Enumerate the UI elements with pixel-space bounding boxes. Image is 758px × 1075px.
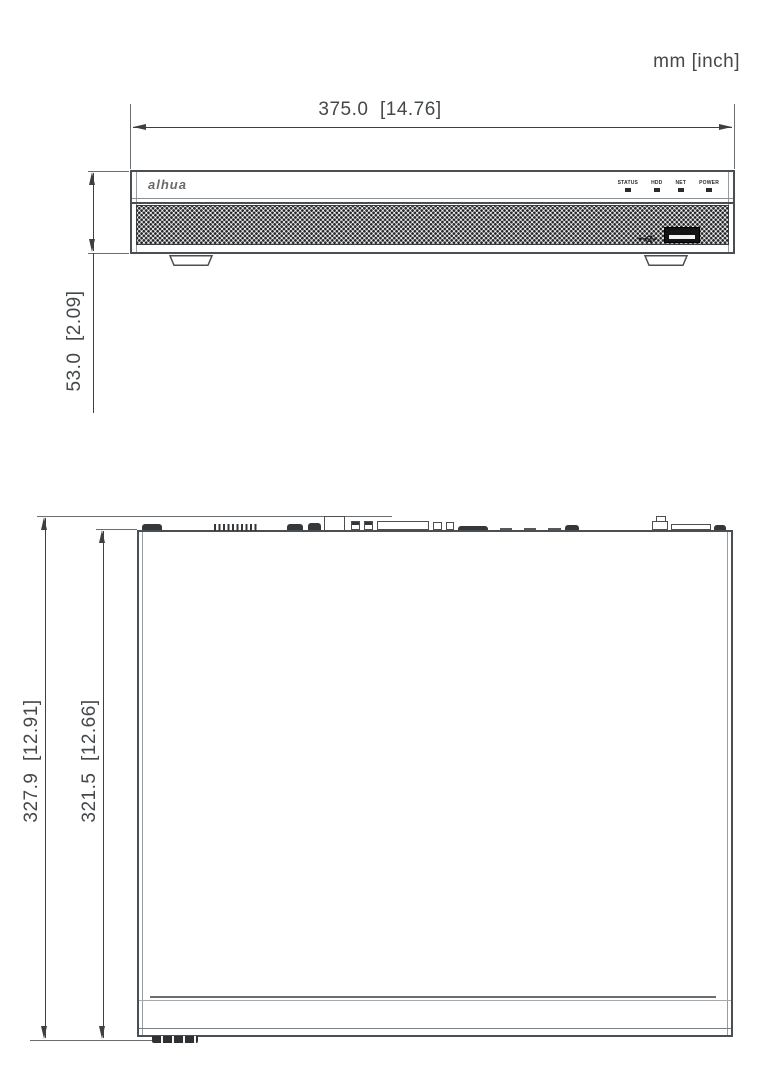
led-indicator-row: STATUS HDD NET POWER	[618, 180, 719, 192]
front-panel-line	[139, 1000, 731, 1001]
led-hdd-label: HDD	[651, 180, 662, 186]
arrowhead-right-icon	[719, 124, 732, 130]
body-depth-dimension-label: 321.5 [12.66]	[79, 681, 101, 841]
rear-edge-mark	[524, 528, 536, 530]
rear-connector-bump	[565, 525, 579, 530]
chassis-edge-line	[142, 532, 143, 1035]
led-indicator-icon	[678, 188, 684, 192]
units-label: mm [inch]	[560, 51, 740, 73]
extension-line-left	[130, 104, 131, 169]
led-indicator-icon	[654, 188, 660, 192]
extension-line-bottom	[88, 253, 129, 254]
rear-edge-mark	[500, 528, 512, 530]
arrowhead-down-icon	[41, 1026, 47, 1039]
rear-audio-jack	[351, 521, 360, 530]
rear-vent-fins	[214, 524, 259, 531]
led-status: STATUS	[618, 180, 638, 192]
rear-connector-bump	[142, 524, 162, 530]
rear-connector-box	[324, 516, 345, 530]
front-panel-line	[150, 996, 716, 998]
height-dimension-line-extension	[93, 253, 94, 413]
front-foot-left	[168, 253, 214, 271]
led-hdd: HDD	[651, 180, 662, 192]
rear-connector-bump	[287, 524, 303, 530]
led-power: POWER	[699, 180, 719, 192]
led-indicator-icon	[625, 188, 631, 192]
usb-port	[664, 227, 700, 243]
overall-depth-dimension-line	[45, 518, 46, 1038]
rear-connector-socket	[446, 522, 454, 530]
brand-logo: alhua	[148, 177, 187, 192]
led-net-label: NET	[676, 180, 687, 186]
bottom-foot-detail	[152, 1036, 198, 1043]
rear-connector-bump	[458, 526, 488, 530]
width-dimension-label: 375.0 [14.76]	[230, 99, 530, 121]
rear-edge-mark	[548, 528, 561, 530]
usb-port-slot	[669, 235, 695, 239]
panel-separator-line	[132, 198, 733, 199]
width-dimension-line	[133, 127, 732, 128]
led-indicator-icon	[706, 188, 712, 192]
body-depth-dimension-line	[103, 531, 104, 1038]
dimension-drawing: mm [inch] 375.0 [14.76] 53.0 [2.09] alhu…	[0, 0, 758, 1075]
led-status-label: STATUS	[618, 180, 638, 186]
rear-power-connector	[652, 521, 668, 530]
arrowhead-up-icon	[89, 172, 95, 185]
overall-depth-dimension-label: 327.9 [12.91]	[21, 681, 43, 841]
front-panel-line	[139, 1028, 731, 1029]
arrowhead-down-icon	[89, 239, 95, 252]
panel-separator-line	[132, 202, 733, 204]
rear-connector-socket	[433, 522, 442, 530]
chassis-edge-line	[727, 532, 728, 1035]
front-view: alhua STATUS HDD NET POWER	[130, 170, 735, 254]
extension-line-bottom	[30, 1040, 153, 1041]
led-net: NET	[676, 180, 687, 192]
rear-connector-bump	[714, 525, 726, 530]
arrowhead-up-icon	[99, 530, 105, 543]
rear-audio-jack	[364, 521, 373, 530]
led-power-label: POWER	[699, 180, 719, 186]
rear-flat-connector	[671, 524, 711, 530]
height-dimension-label: 53.0 [2.09]	[64, 266, 86, 416]
usb-icon	[638, 231, 658, 241]
arrowhead-left-icon	[133, 124, 146, 130]
rear-vga-connector	[377, 521, 429, 530]
extension-line-right	[734, 104, 735, 169]
arrowhead-up-icon	[41, 517, 47, 530]
top-view	[137, 530, 733, 1037]
front-foot-right	[643, 253, 689, 271]
arrowhead-down-icon	[99, 1026, 105, 1039]
rear-connector-bump	[308, 523, 321, 530]
